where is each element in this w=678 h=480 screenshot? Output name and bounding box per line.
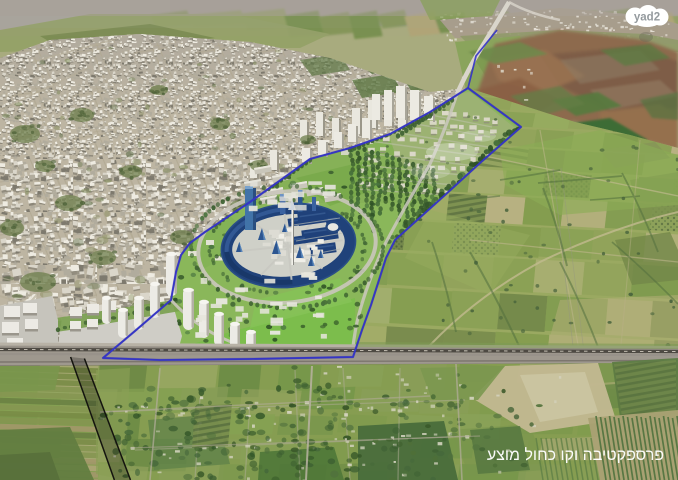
svg-text:yad2: yad2 (634, 12, 660, 24)
svg-text:פרספקטיבה וקו כחול מוצע: פרספקטיבה וקו כחול מוצע (487, 446, 664, 464)
